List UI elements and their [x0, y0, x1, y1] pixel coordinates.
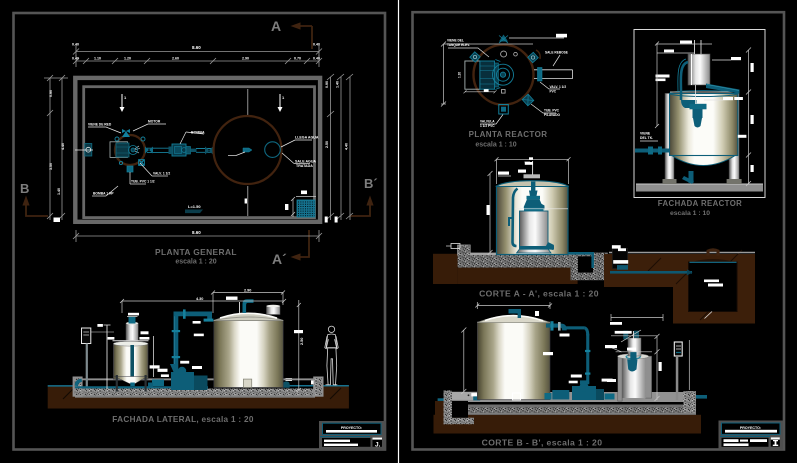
svg-text:4.40: 4.40: [61, 143, 65, 150]
svg-text:SALE REBOSE: SALE REBOSE: [545, 51, 568, 55]
svg-text:VALVULA: VALVULA: [480, 120, 495, 124]
svg-text:B: B: [20, 181, 29, 196]
svg-text:0.70: 0.70: [294, 57, 301, 61]
svg-text:1.20: 1.20: [458, 72, 462, 78]
svg-text:PVC: PVC: [550, 89, 557, 93]
svg-text:SALE AGUA: SALE AGUA: [295, 160, 316, 164]
svg-text:LLEGA AGUA: LLEGA AGUA: [295, 136, 319, 140]
svg-text:escala 1 : 20: escala 1 : 20: [175, 259, 216, 266]
svg-text:1.40: 1.40: [336, 81, 340, 88]
svg-text:0.90: 0.90: [49, 90, 53, 97]
svg-text:2.60: 2.60: [172, 57, 179, 61]
svg-text:VALV. 1 1/2: VALV. 1 1/2: [153, 172, 170, 176]
svg-text:escala 1 : 10: escala 1 : 10: [475, 142, 516, 149]
svg-text:1.20: 1.20: [124, 57, 131, 61]
svg-text:1 1/2 PVC: 1 1/2 PVC: [480, 124, 495, 128]
svg-text:VIENE DE RED: VIENE DE RED: [88, 123, 112, 127]
svg-text:1.10: 1.10: [94, 57, 101, 61]
svg-text:BOMBA: BOMBA: [191, 131, 205, 135]
svg-text:L=1.50: L=1.50: [188, 204, 201, 209]
svg-text:TRATADA: TRATADA: [296, 164, 313, 168]
svg-text:FACHADA LATERAL, escala 1 : 20: FACHADA LATERAL, escala 1 : 20: [112, 415, 254, 424]
svg-text:8.60: 8.60: [192, 45, 201, 50]
svg-text:0.40: 0.40: [72, 57, 79, 61]
svg-text:2.90: 2.90: [242, 57, 249, 61]
svg-text:DEL TK.: DEL TK.: [640, 136, 653, 140]
svg-text:CORTE A - A', escala 1 : 20: CORTE A - A', escala 1 : 20: [479, 289, 599, 299]
svg-text:0.40: 0.40: [313, 57, 320, 61]
svg-text:3.50: 3.50: [49, 163, 53, 170]
svg-text:1.40: 1.40: [57, 188, 61, 195]
svg-text:BOMBA 1 HP: BOMBA 1 HP: [93, 192, 114, 196]
svg-text:FACHADA REACTOR: FACHADA REACTOR: [658, 199, 742, 208]
svg-text:escala 1 : 10: escala 1 : 10: [670, 210, 710, 217]
svg-text:VALV. 1 1/2: VALV. 1 1/2: [550, 85, 567, 89]
svg-text:VIENE: VIENE: [640, 132, 651, 136]
svg-text:TUB. PVC: TUB. PVC: [544, 109, 560, 113]
svg-text:4.40: 4.40: [345, 143, 349, 150]
svg-text:A´: A´: [272, 251, 287, 267]
svg-text:2.50: 2.50: [325, 141, 329, 148]
svg-text:PLANTA REACTOR: PLANTA REACTOR: [469, 130, 548, 139]
svg-text:J.: J.: [375, 442, 381, 449]
svg-text:0.40: 0.40: [313, 43, 320, 47]
svg-text:0.40: 0.40: [72, 43, 79, 47]
svg-text:TANQUE ELEV.: TANQUE ELEV.: [447, 43, 470, 47]
svg-text:PROYECTO:: PROYECTO:: [341, 426, 362, 430]
svg-text:VIENE DEL: VIENE DEL: [447, 39, 464, 43]
svg-text:0.90: 0.90: [325, 81, 329, 88]
svg-text:2.50: 2.50: [300, 338, 304, 345]
svg-text:A: A: [271, 18, 281, 34]
svg-text:2.90: 2.90: [244, 289, 251, 293]
svg-text:8.60: 8.60: [192, 230, 201, 235]
svg-text:4.30: 4.30: [196, 297, 203, 301]
svg-text:PLANTA GENERAL: PLANTA GENERAL: [155, 247, 237, 257]
svg-text:MOTOR: MOTOR: [148, 120, 161, 124]
svg-text:PROYECTO:: PROYECTO:: [740, 426, 761, 430]
svg-text:P/LAVADO: P/LAVADO: [544, 113, 561, 117]
svg-text:B´: B´: [364, 176, 378, 191]
svg-text:TUB. PVC 1 1/2: TUB. PVC 1 1/2: [131, 180, 155, 184]
svg-text:CORTE B - B', escala 1 : 20: CORTE B - B', escala 1 : 20: [482, 438, 603, 448]
